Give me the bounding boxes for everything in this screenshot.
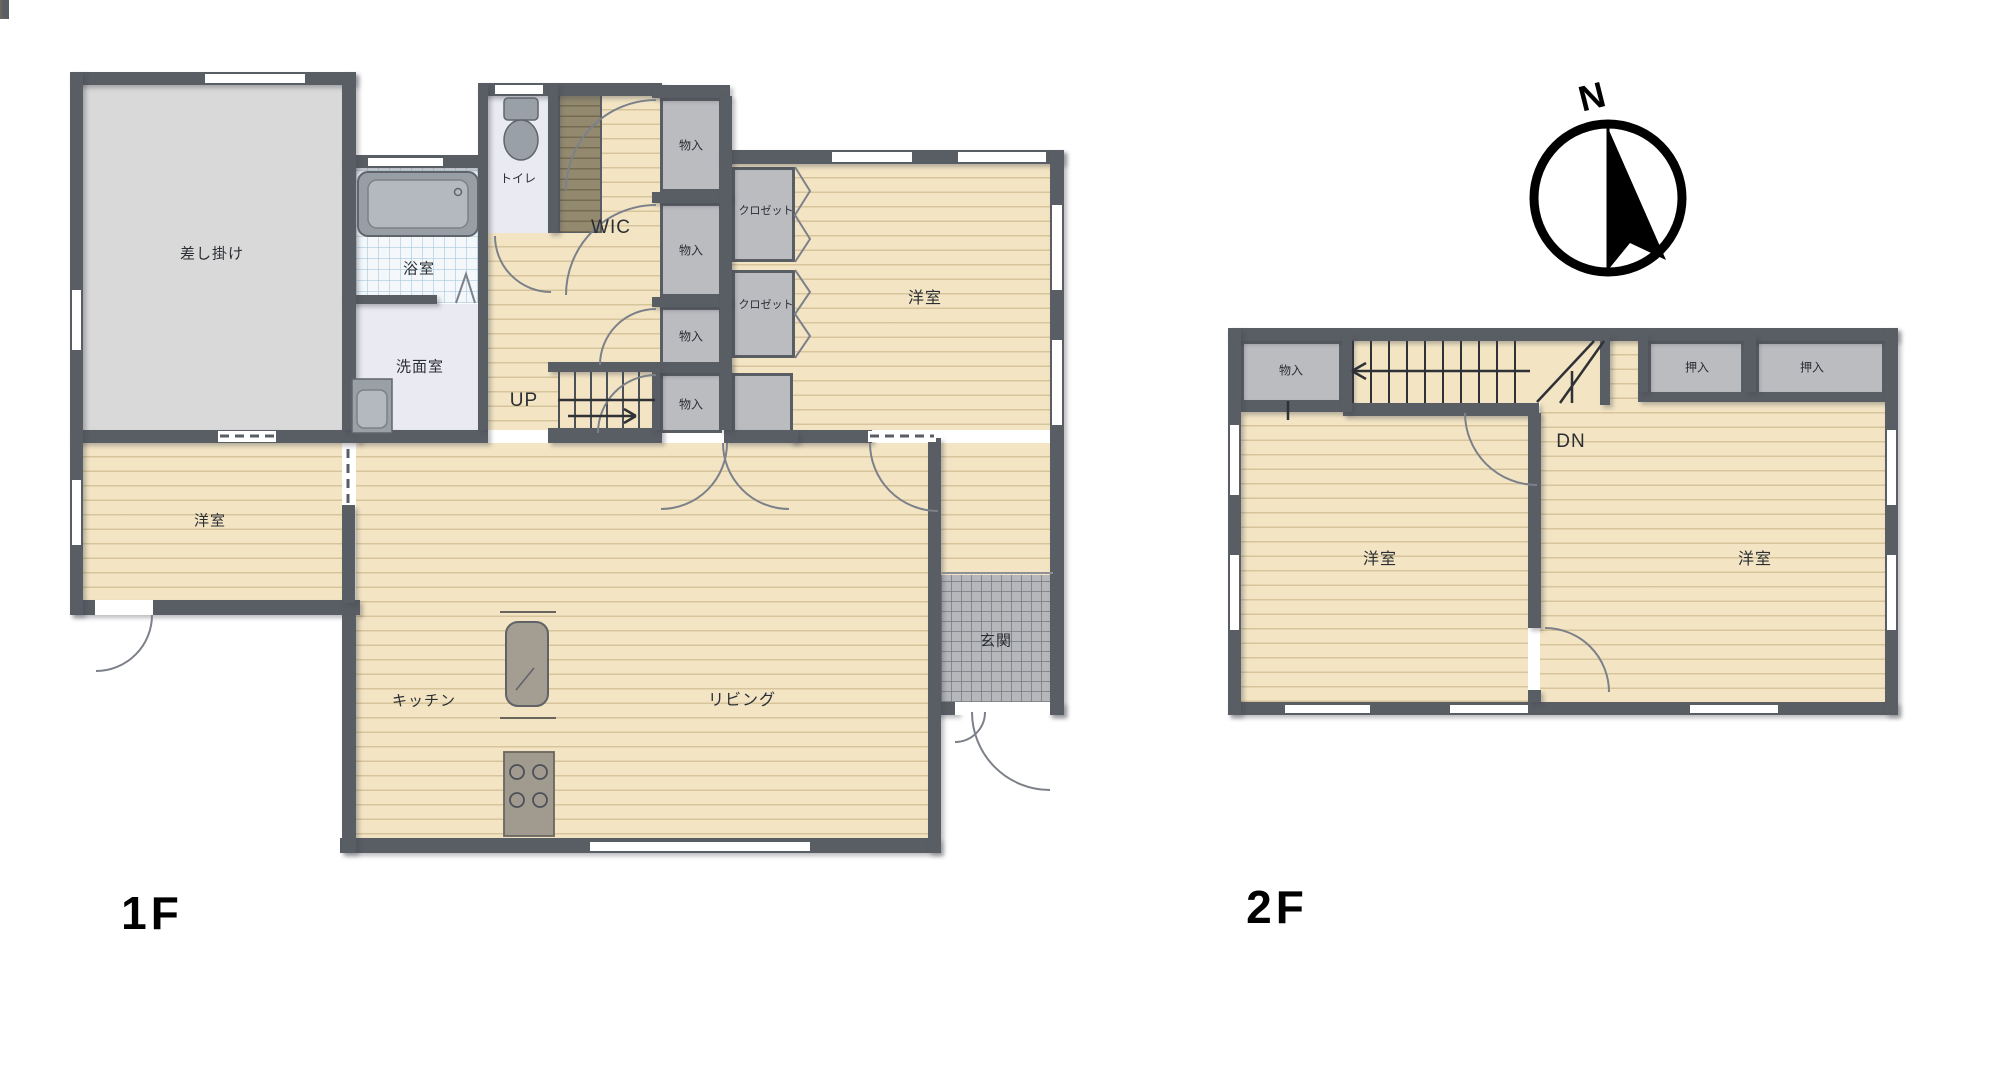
- label-kitchen: キッチン: [392, 690, 456, 711]
- window: [1228, 425, 1241, 495]
- kitchen-counter: [0, 0, 9, 19]
- door-opening: [95, 600, 153, 615]
- wall: [342, 295, 437, 304]
- wall: [724, 430, 798, 443]
- open-passage: [218, 431, 276, 442]
- wall: [1240, 400, 1344, 412]
- label-closet-2: クロゼット: [739, 296, 794, 312]
- label-bath: 浴室: [403, 258, 435, 279]
- wall: [1228, 328, 1898, 341]
- window: [70, 480, 83, 545]
- wall: [790, 430, 872, 443]
- floor2-title: 2F: [1246, 880, 1308, 934]
- window: [1050, 340, 1064, 425]
- wall: [1528, 413, 1541, 628]
- wall: [652, 192, 730, 203]
- label-storage-2: 物入: [679, 242, 703, 259]
- label-bedroom-2f-right: 洋室: [1738, 545, 1772, 569]
- wall: [652, 297, 730, 307]
- shoe-closet-cell: [732, 373, 793, 433]
- window: [70, 290, 83, 350]
- window: [1450, 703, 1528, 715]
- room-bath-floor: [356, 168, 478, 303]
- compass-icon: [1534, 124, 1682, 272]
- wall: [1638, 392, 1887, 402]
- label-stairs-down: DN: [1556, 431, 1585, 453]
- wall: [548, 83, 558, 233]
- window: [590, 840, 810, 853]
- compass-north-label: N: [1574, 73, 1609, 120]
- room-toilet-floor: [488, 96, 548, 233]
- label-stairs-up: UP: [510, 390, 538, 412]
- entrance-door-arc: [955, 712, 985, 742]
- label-toilet: トイレ: [500, 170, 536, 187]
- wall: [720, 96, 732, 430]
- label-living: リビング: [708, 686, 776, 710]
- wall: [1528, 690, 1541, 702]
- wall: [342, 72, 356, 430]
- label-wic: WIC: [591, 217, 631, 239]
- window: [1885, 430, 1898, 505]
- wic-hanger-closet: [558, 94, 602, 234]
- label-bedroom-2f-left: 洋室: [1363, 545, 1397, 569]
- label-storage-2f: 物入: [1279, 362, 1303, 379]
- wall: [1228, 328, 1241, 715]
- label-entrance: 玄関: [980, 630, 1012, 651]
- wall: [342, 615, 356, 853]
- window: [1690, 703, 1778, 715]
- wall: [1638, 335, 1648, 392]
- label-storage-1: 物入: [679, 137, 703, 154]
- window: [958, 150, 1046, 164]
- wall: [1342, 335, 1352, 412]
- label-washroom: 洗面室: [396, 356, 444, 377]
- entrance-hall-floor: [941, 443, 1053, 575]
- window: [1050, 205, 1064, 290]
- wall: [342, 505, 355, 603]
- open-passage: [868, 431, 936, 442]
- label-bedroom-ne: 洋室: [908, 284, 942, 308]
- label-oshiire-2: 押入: [1800, 359, 1824, 376]
- label-oshiire-1: 押入: [1685, 359, 1709, 376]
- window: [1885, 555, 1898, 630]
- wall: [478, 83, 488, 430]
- floor-plan-canvas: 差し掛け 浴室 洗面室 トイレ WIC UP 物入 物入 物入 物入 クロゼット…: [0, 0, 2000, 1076]
- window: [205, 72, 305, 85]
- wall: [548, 362, 662, 372]
- wall: [356, 430, 488, 443]
- room-ldk-floor: [356, 443, 928, 838]
- stairs-2f: [1352, 341, 1530, 403]
- closet-cell-2: [732, 270, 795, 358]
- label-bedroom-w: 洋室: [194, 510, 226, 531]
- label-storage-4: 物入: [679, 396, 703, 413]
- label-closet-1: クロゼット: [739, 202, 794, 218]
- wall: [1885, 328, 1898, 715]
- wall: [1343, 403, 1539, 416]
- wall: [548, 428, 662, 443]
- window: [1228, 555, 1241, 630]
- window: [1285, 703, 1370, 715]
- wall: [652, 368, 660, 430]
- wall: [928, 438, 941, 853]
- stairs-1f: [558, 368, 655, 430]
- window: [495, 83, 543, 96]
- door-arc: [96, 615, 152, 671]
- wall: [652, 85, 730, 98]
- wall: [70, 430, 360, 443]
- room-wic-floor: [602, 96, 660, 233]
- entrance-door-arc: [972, 712, 1050, 790]
- floor1-title: 1F: [121, 886, 183, 940]
- wall: [1744, 335, 1756, 392]
- label-storage-3: 物入: [679, 328, 703, 345]
- entrance-door-opening: [955, 702, 1050, 715]
- window: [368, 156, 443, 168]
- label-sashikake: 差し掛け: [180, 243, 244, 264]
- window: [832, 150, 912, 164]
- wall: [1600, 335, 1610, 405]
- stairs-2f-winder: [1530, 341, 1607, 403]
- wall: [652, 365, 730, 373]
